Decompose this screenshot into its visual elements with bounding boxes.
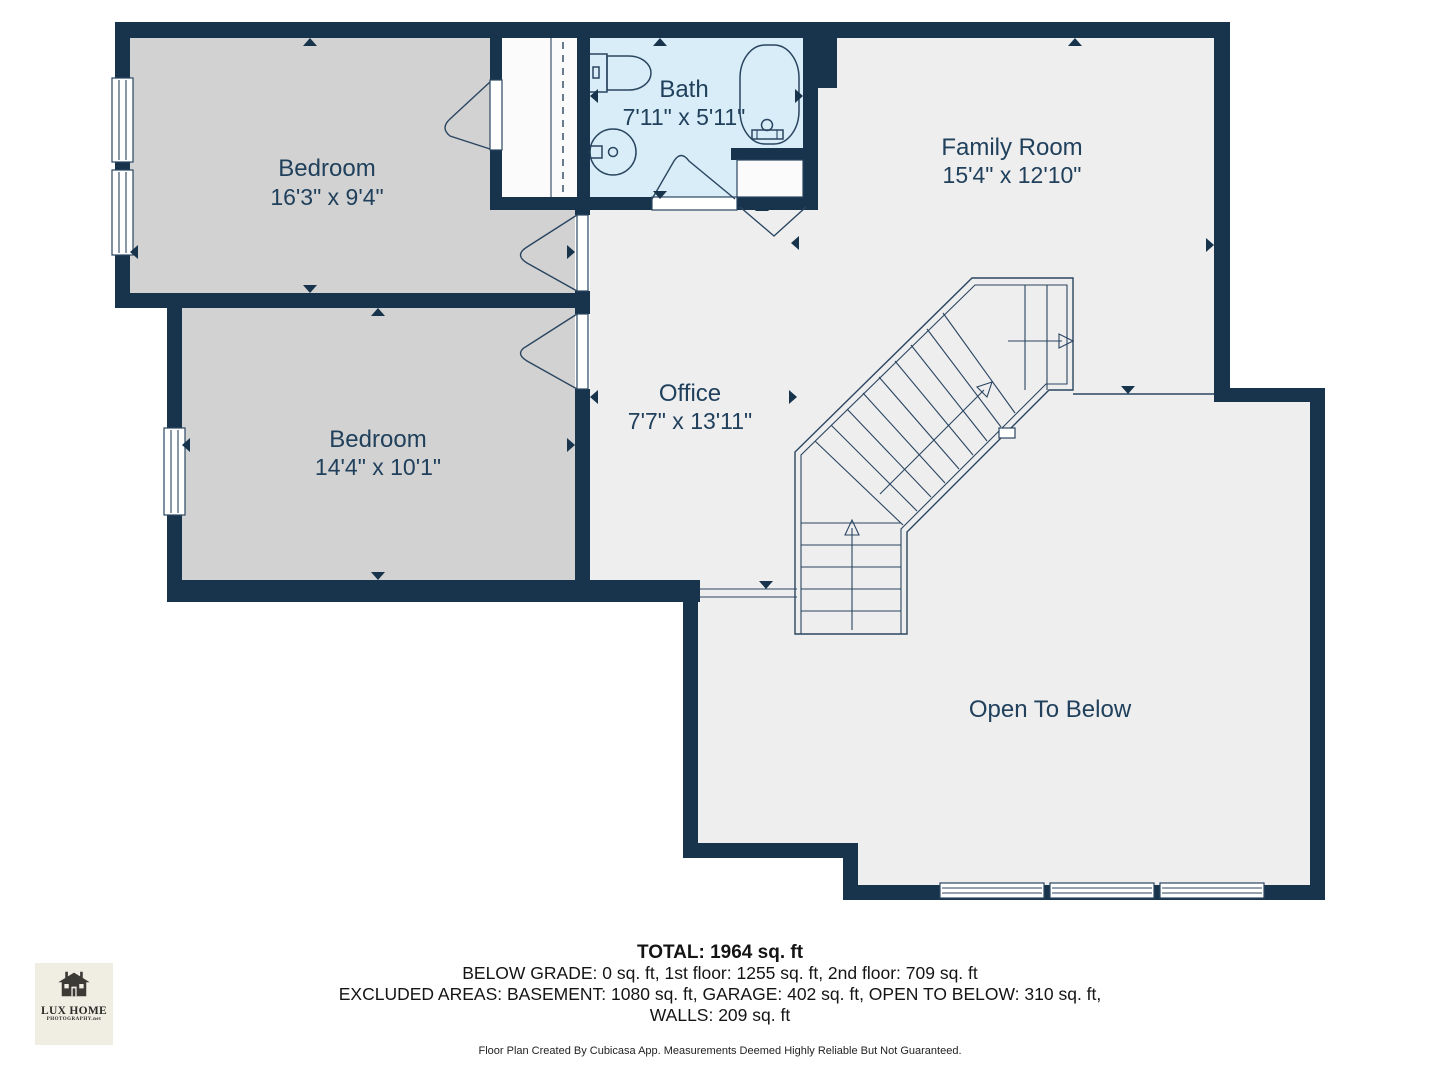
room-dims-bedroom-2: 14'4" x 10'1" <box>315 454 441 480</box>
room-dims-office: 7'7" x 13'11" <box>628 408 752 434</box>
door-threshold-bath <box>652 197 737 210</box>
door-leaf <box>577 215 588 291</box>
window <box>112 78 133 162</box>
room-label-open-to-below: Open To Below <box>969 696 1132 723</box>
room-label-office: Office <box>659 380 721 407</box>
door-leaf <box>577 314 588 389</box>
area-summary: TOTAL: 1964 sq. ft BELOW GRADE: 0 sq. ft… <box>0 942 1440 1026</box>
room-dims-family-room: 15'4" x 12'10" <box>943 162 1082 188</box>
window <box>940 883 1044 898</box>
house-icon <box>56 970 92 998</box>
room-dims-bedroom-1: 16'3" x 9'4" <box>270 184 383 210</box>
window <box>112 170 133 255</box>
disclaimer-text: Floor Plan Created By Cubicasa App. Meas… <box>0 1045 1440 1057</box>
summary-total: TOTAL: 1964 sq. ft <box>0 942 1440 963</box>
room-label-bedroom-2: Bedroom <box>329 426 426 453</box>
logo-title: LUX HOME <box>35 1005 113 1017</box>
window <box>164 428 185 515</box>
logo-lux-home: LUX HOME PHOTOGRAPHY.net <box>35 963 113 1045</box>
summary-line-walls: WALLS: 209 sq. ft <box>0 1005 1440 1026</box>
window <box>1050 883 1154 898</box>
window <box>1160 883 1264 898</box>
floor-plan-svg: Bedroom 16'3" x 9'4" Bath 7'11" x 5'11" … <box>0 0 1440 1080</box>
summary-line-excluded: EXCLUDED AREAS: BASEMENT: 1080 sq. ft, G… <box>0 984 1440 1005</box>
summary-line-floors: BELOW GRADE: 0 sq. ft, 1st floor: 1255 s… <box>0 963 1440 984</box>
room-dims-bath: 7'11" x 5'11" <box>623 104 746 130</box>
room-label-bedroom-1: Bedroom <box>278 155 375 182</box>
stairs-newel-post <box>999 428 1015 438</box>
room-label-family-room: Family Room <box>941 134 1082 161</box>
door-leaf <box>490 80 502 150</box>
floor-closet <box>502 38 577 197</box>
room-label-bath: Bath <box>659 76 708 103</box>
linen-closet <box>737 160 803 197</box>
logo-subtitle: PHOTOGRAPHY.net <box>35 1017 113 1022</box>
floor-plan-page: Bedroom 16'3" x 9'4" Bath 7'11" x 5'11" … <box>0 0 1440 1080</box>
